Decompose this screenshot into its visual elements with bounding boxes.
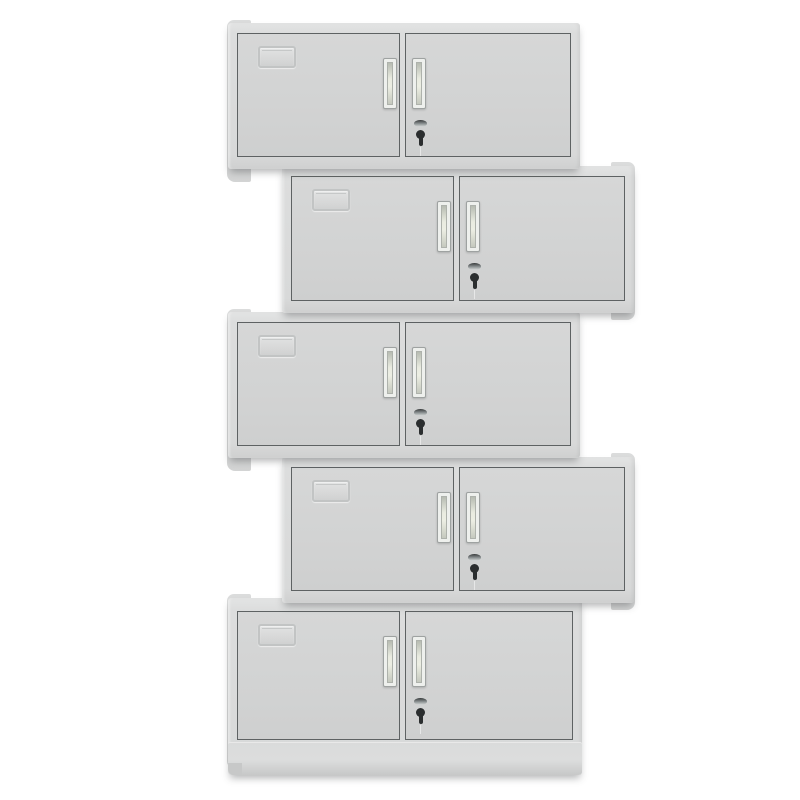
cabinet-3 xyxy=(228,312,580,458)
keyhole-icon xyxy=(470,273,479,282)
left-door-handle xyxy=(383,347,397,398)
cabinet-left-door xyxy=(237,611,400,740)
right-door-handle xyxy=(412,58,426,109)
cabinet-door-area xyxy=(237,322,571,446)
cabinet-right-door xyxy=(405,611,573,740)
cabinet-left-door xyxy=(291,176,454,301)
cabinet-right-door xyxy=(405,33,571,157)
cabinet-2 xyxy=(282,166,634,313)
label-card-holder xyxy=(258,624,296,646)
left-door-handle xyxy=(383,58,397,109)
handle-recess xyxy=(470,205,476,248)
cabinet-body xyxy=(282,166,634,313)
cabinet-right-door xyxy=(459,467,625,591)
handle-recess xyxy=(387,62,393,105)
right-door-handle xyxy=(412,636,426,687)
cabinet-door-area xyxy=(237,33,571,157)
right-door-handle xyxy=(466,201,480,252)
cabinet-left-door xyxy=(237,322,400,446)
label-card-holder xyxy=(258,46,296,68)
cabinet-4 xyxy=(282,457,634,603)
cabinet-left-door xyxy=(237,33,400,157)
cabinet-body xyxy=(282,457,634,603)
handle-recess xyxy=(416,640,422,683)
handle-recess xyxy=(441,205,447,248)
cabinet-body xyxy=(228,23,580,169)
cabinet-door-area xyxy=(291,467,625,591)
keyhole-icon xyxy=(416,130,425,139)
keyhole-icon xyxy=(470,564,479,573)
handle-recess xyxy=(387,351,393,394)
right-door-handle xyxy=(412,347,426,398)
cabinet-door-area xyxy=(291,176,625,301)
left-door-handle xyxy=(383,636,397,687)
label-card-holder xyxy=(312,189,350,211)
cabinet-left-door xyxy=(291,467,454,591)
handle-recess xyxy=(441,496,447,539)
handle-recess xyxy=(470,496,476,539)
lock-cap xyxy=(468,263,481,270)
handle-recess xyxy=(416,351,422,394)
cabinet-1 xyxy=(228,23,580,169)
lock-cap xyxy=(414,698,427,705)
cabinet-right-door xyxy=(459,176,625,301)
label-card-holder xyxy=(312,480,350,502)
left-door-handle xyxy=(437,201,451,252)
cabinet-door-area xyxy=(237,611,573,740)
cabinet-5 xyxy=(228,598,582,775)
handle-recess xyxy=(387,640,393,683)
lock-cap xyxy=(414,120,427,127)
product-image xyxy=(0,0,800,800)
label-card-holder xyxy=(258,335,296,357)
handle-recess xyxy=(416,62,422,105)
cabinet-body xyxy=(228,312,580,458)
cabinet-plinth xyxy=(228,742,582,775)
right-door-handle xyxy=(466,492,480,543)
cabinet-body xyxy=(228,598,582,775)
left-door-handle xyxy=(437,492,451,543)
keyhole-icon xyxy=(416,419,425,428)
keyhole-icon xyxy=(416,708,425,717)
lock-cap xyxy=(414,409,427,416)
cabinet-right-door xyxy=(405,322,571,446)
lock-cap xyxy=(468,554,481,561)
